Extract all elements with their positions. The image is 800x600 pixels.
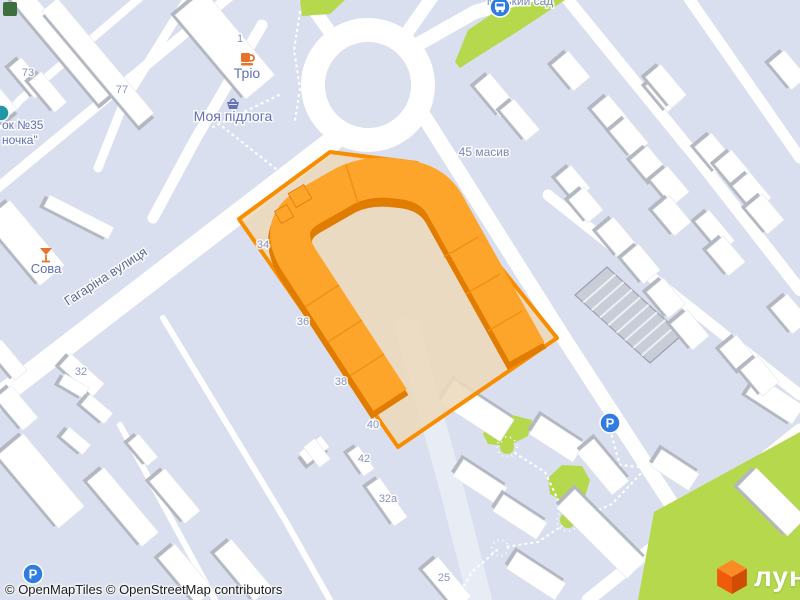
bus-stop-icon [490, 0, 510, 17]
bus-window [497, 4, 504, 7]
parking-icon: P [23, 564, 43, 584]
parking-letter: P [29, 567, 38, 582]
green-circle [500, 440, 514, 454]
housenumber-77: 77 [116, 84, 128, 96]
park-icon [3, 2, 17, 16]
poi-icon [0, 105, 9, 121]
attribution-osm-link[interactable]: © OpenStreetMap contributors [106, 582, 283, 597]
basket-body [227, 102, 239, 109]
park-icon-bg [3, 2, 17, 16]
map-canvas[interactable]: 73771ТріоМоя підлогаСоваок №35ночка"Гага… [0, 0, 800, 600]
poi-label-nochka: ночка" [2, 133, 38, 147]
attribution: © OpenMapTiles © OpenStreetMap contribut… [5, 582, 282, 597]
poi-label-rynok-35: ок №35 [2, 118, 44, 132]
bus-wheel [501, 10, 504, 13]
housenumber-42: 42 [358, 453, 370, 465]
poi-icon-bg [0, 105, 9, 121]
housenumber-25: 25 [438, 572, 450, 584]
housenumber-73: 73 [22, 67, 34, 79]
parking-letter: P [606, 416, 615, 431]
attribution-openmaptiles-link[interactable]: © OpenMapTiles [5, 582, 102, 597]
cup-saucer [241, 63, 253, 66]
brand-cube-icon [716, 560, 748, 594]
housenumber-1: 1 [237, 33, 243, 45]
brand-logo[interactable]: лун [716, 560, 800, 594]
roundabout-island [325, 42, 411, 128]
parking-icon: P [600, 413, 620, 433]
bus-wheel [496, 10, 499, 13]
cup-body [241, 53, 250, 62]
brand-text: лун [754, 561, 800, 593]
poi-label-trio: Тріо [234, 65, 261, 81]
place-label-45-masyv: 45 масив [459, 145, 510, 159]
poi-label-sova: Сова [31, 261, 62, 276]
housenumber-32: 32 [75, 366, 87, 378]
housenumber-40: 40 [367, 419, 379, 431]
poi-label-moya-pidloha: Моя підлога [194, 108, 273, 124]
housenumber-34: 34 [257, 239, 269, 251]
housenumber-38: 38 [335, 376, 347, 388]
map-viewport[interactable]: 73771ТріоМоя підлогаСоваок №35ночка"Гага… [0, 0, 800, 600]
housenumber-32a: 32а [379, 493, 398, 505]
housenumber-36: 36 [297, 316, 309, 328]
